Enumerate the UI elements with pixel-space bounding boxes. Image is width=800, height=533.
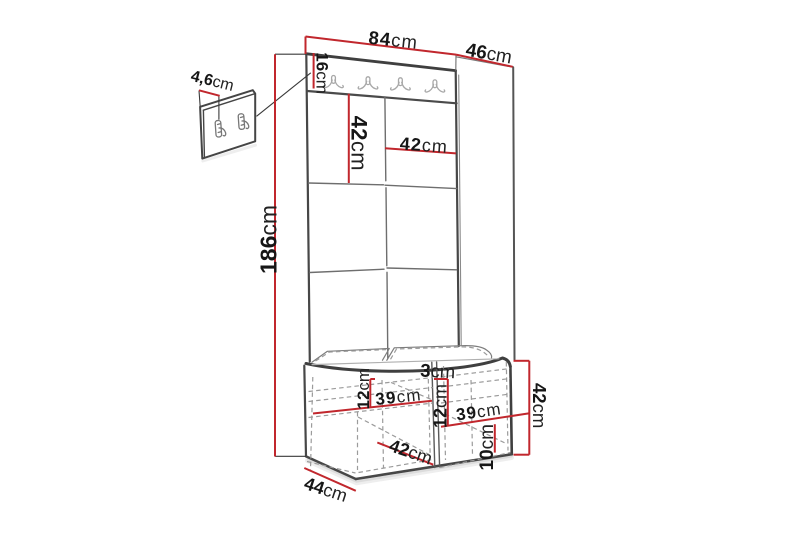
svg-text:10cm: 10cm xyxy=(477,424,498,470)
svg-text:42cm: 42cm xyxy=(399,134,448,157)
svg-text:16cm: 16cm xyxy=(313,52,332,94)
svg-text:3cm: 3cm xyxy=(420,360,456,383)
svg-text:186cm: 186cm xyxy=(256,205,282,274)
svg-text:12cm: 12cm xyxy=(431,384,451,428)
svg-text:12cm: 12cm xyxy=(354,368,373,410)
svg-text:42cm: 42cm xyxy=(529,383,550,428)
svg-text:42cm: 42cm xyxy=(347,116,372,171)
